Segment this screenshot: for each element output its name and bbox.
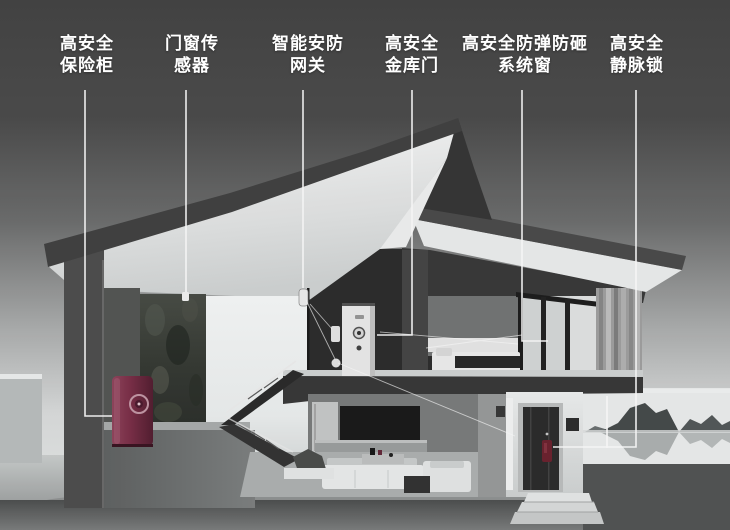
callout-vein-lock: 高安全 静脉锁 [557, 33, 717, 77]
vignette [0, 0, 730, 530]
callout-vein-lock-line1: 高安全 [557, 33, 717, 55]
callout-vein-lock-line2: 静脉锁 [557, 55, 717, 77]
smart-home-security-infographic: 高安全 保险柜 门窗传 感器 智能安防 网关 高安全 金库门 高安全防弹防砸 系… [0, 0, 730, 530]
house-cutaway-illustration [0, 0, 730, 530]
